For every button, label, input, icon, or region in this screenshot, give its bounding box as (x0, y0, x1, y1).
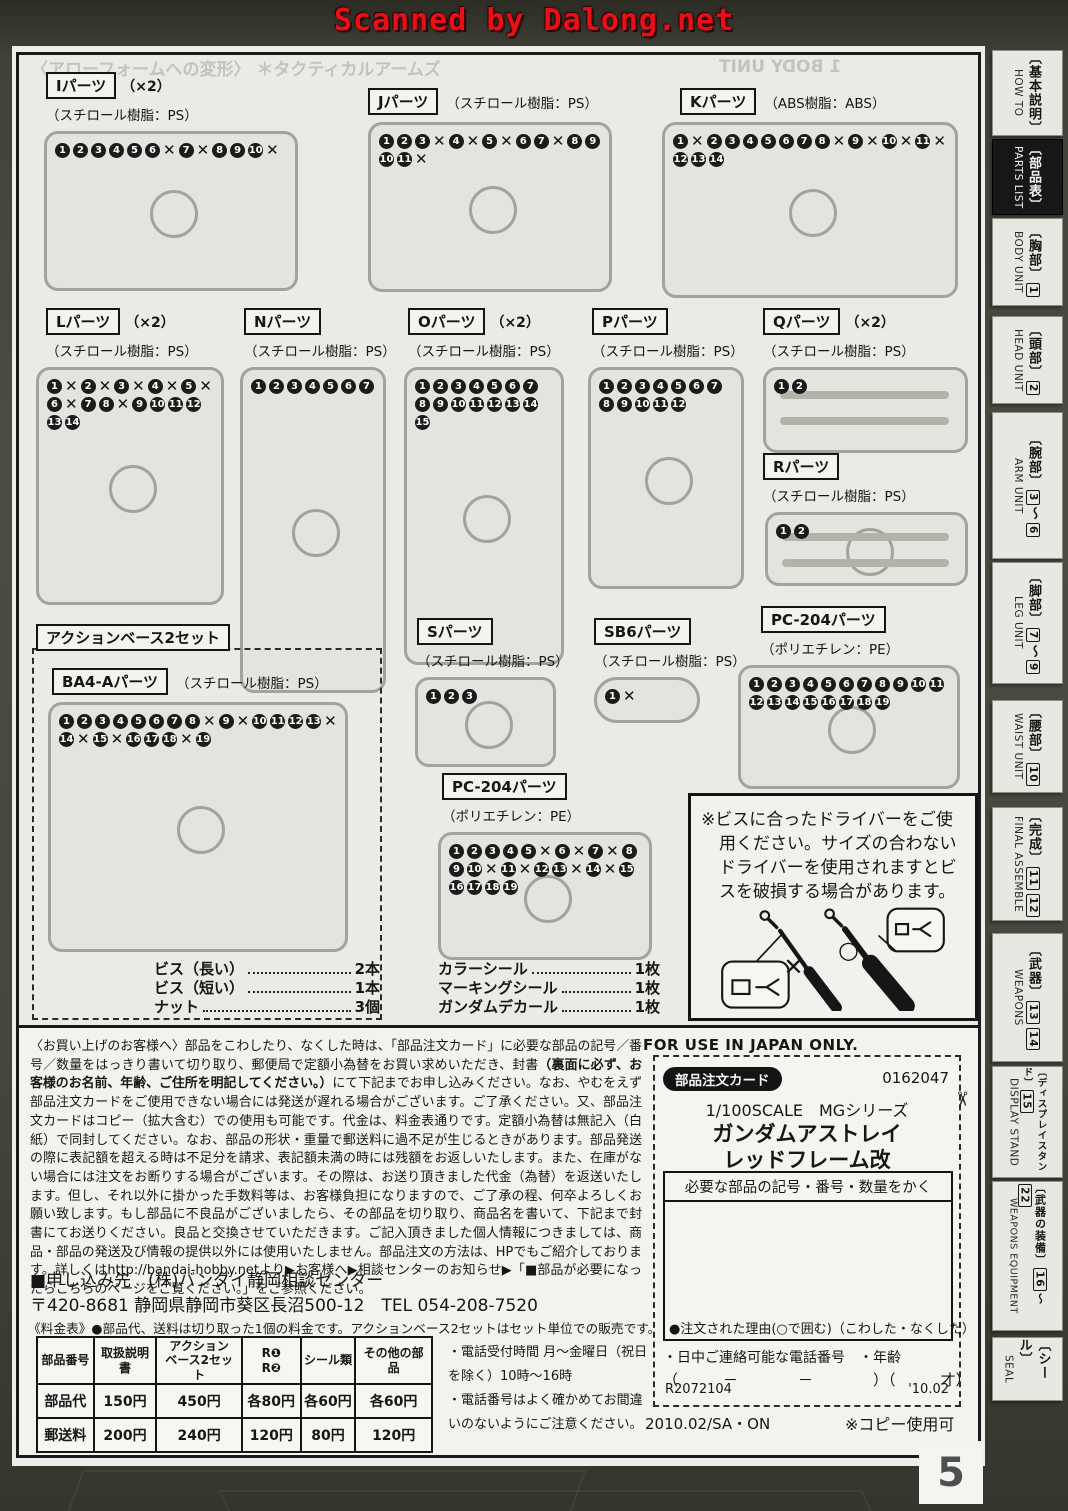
price-table-cell: 120円 (355, 1418, 432, 1452)
parts-write-box: 必要な部品の記号・番号・数量をかく ●注文された理由(○で囲む)（こわした・なく… (663, 1171, 953, 1341)
part-number-badge: 18 (485, 880, 500, 895)
part-number-badge: 9 (132, 397, 147, 412)
part-number-badge: 16 (821, 695, 836, 710)
part-number-badge: 1 (449, 844, 464, 859)
part-number-badge: 15 (415, 415, 430, 430)
runner-diagram-l: 1✕2✕3✕4✕5✕6✕78✕91011121314 (36, 367, 224, 605)
part-number-badge: 11 (653, 397, 668, 412)
part-number-badge: 1 (605, 689, 620, 704)
part-number-badge: 13 (552, 862, 567, 877)
part-number-badge: 1 (415, 379, 430, 394)
part-material: （スチロール樹脂：PS） (244, 340, 396, 360)
price-table-header-cell: 部品番号 (37, 1337, 94, 1384)
ok-mark: ○ (838, 936, 859, 964)
order-info-area: 〈お買い上げのお客様へ〉部品をこわしたり、なくした時は、「部品注文カード」に必要… (16, 1025, 981, 1458)
screw-nut-list: ビス（長い）2本ビス（短い）1本ナット3個 (154, 960, 380, 1016)
crossed-out-mark: ✕ (570, 862, 583, 877)
part-number-badge: 19 (875, 695, 890, 710)
part-number-badge: 3 (451, 379, 466, 394)
part-number-badge: 9 (230, 143, 245, 158)
sidebar-tab-leg-unit[interactable]: 〔脚部〕7～9LEG UNIT (992, 562, 1063, 684)
part-material: （スチロール樹脂：PS） (594, 650, 746, 670)
part-number-badge: 6 (149, 714, 164, 729)
part-number-badge: 8 (599, 397, 614, 412)
part-number-badge: 4 (113, 714, 128, 729)
part-label: BA4-Aパーツ (52, 668, 168, 695)
part-multiplier: （×2） (125, 312, 174, 332)
tab-step-number: 15 (1020, 1090, 1034, 1113)
crossed-out-mark: ✕ (519, 862, 532, 877)
part-number-badge: 3 (95, 714, 110, 729)
runner-diagram-k: 1✕2345678✕9✕10✕11✕121314 (662, 122, 958, 298)
part-number-badge: 1 (55, 143, 70, 158)
order-card-label: 部品注文カード (663, 1067, 782, 1091)
runner-diagram-ba4a: 12345678✕9✕10111213✕14✕15✕161718✕19 (48, 702, 348, 952)
quantity-list-row: カラーシール1枚 (438, 960, 660, 978)
part-label: Qパーツ (763, 308, 840, 335)
tab-step-number: 2 (1026, 381, 1040, 395)
part-number-badge: 5 (131, 714, 146, 729)
part-label: Nパーツ (244, 308, 321, 335)
sidebar-tab-parts-list[interactable]: 〔部品表〕PARTS LIST (992, 139, 1063, 215)
dot-leader (532, 972, 631, 974)
postal-address-line: 〒420-8681 静岡県静岡市葵区長沼500-12 TEL 054-208-7… (30, 1291, 538, 1316)
crossed-out-mark: ✕ (203, 714, 216, 729)
sidebar-tab-how-to[interactable]: 〔基本説明〕HOW TO (992, 50, 1063, 136)
crossed-out-mark: ✕ (65, 379, 78, 394)
part-number-badge: 11 (168, 397, 183, 412)
price-table-header-cell: R❶ R❷ (242, 1337, 301, 1384)
part-number-badge: 2 (73, 143, 88, 158)
price-table-cell: 240円 (156, 1418, 242, 1452)
sidebar-tab-display-stand[interactable]: 〔ディスプレイスタンド〕15DISPLAY STAND (992, 1066, 1063, 1178)
part-number-badge: 18 (857, 695, 872, 710)
part-multiplier: （×2） (845, 312, 894, 332)
part-number-badge: 17 (839, 695, 854, 710)
crossed-out-mark: ✕ (500, 134, 513, 149)
part-number-badge: 5 (482, 134, 497, 149)
part-number-badge: 1 (426, 689, 441, 704)
part-number-badge: 5 (181, 379, 196, 394)
order-instructions-paragraph: 〈お買い上げのお客様へ〉部品をこわしたり、なくした時は、「部品注文カード」に必要… (30, 1038, 642, 1300)
quantity-list-row: ビス（長い）2本 (154, 960, 380, 978)
text-segment: にて下記までお申し込みください。なお、やむをえず部品注文カードをご使用できない場… (30, 1076, 642, 1297)
write-box-header: 必要な部品の記号・番号・数量をかく (665, 1173, 951, 1202)
part-number-badge: 2 (467, 844, 482, 859)
crossed-out-mark: ✕ (166, 379, 179, 394)
item-name: カラーシール (438, 960, 528, 978)
price-table-cell: 450円 (156, 1384, 242, 1418)
sidebar-tab-weapons[interactable]: 〔武器〕1314WEAPONS (992, 933, 1063, 1062)
action-base-box: BA4-Aパーツ（スチロール樹脂：PS） 12345678✕9✕10111213… (32, 648, 382, 1020)
wrong-mark: ✕ (784, 953, 804, 981)
part-label: Pパーツ (592, 308, 668, 335)
item-name: ビス（短い） (154, 979, 244, 997)
quantity-list-row: ガンダムデカール1枚 (438, 998, 660, 1016)
runner-diagram-r: 12 (765, 512, 968, 586)
part-number-badge: 6 (516, 134, 531, 149)
part-number-badge: 2 (444, 689, 459, 704)
part-number-badge: 7 (534, 134, 549, 149)
tab-step-number: 11 (1026, 867, 1040, 890)
price-table-header-cell: シール類 (301, 1337, 356, 1384)
part-number-badge: 13 (306, 714, 321, 729)
part-number-badge: 4 (803, 677, 818, 692)
price-table: 部品番号取扱説明書アクション ベース2セットR❶ R❷シール類その他の部品部品代… (36, 1336, 433, 1453)
card-serial-code: R2072104 (665, 1382, 732, 1397)
sidebar-tab-weapons-equipment[interactable]: 〔武器の装備〕16～22WEAPONS EQUIPMENT (992, 1181, 1063, 1331)
part-section-o: Oパーツ（×2） （スチロール樹脂：PS） 123456789101112131… (408, 308, 564, 665)
part-material: （スチロール樹脂：PS） (176, 672, 328, 692)
part-number-badge: 3 (635, 379, 650, 394)
part-section-sb6: SB6パーツ （スチロール樹脂：PS） 1✕ (594, 618, 746, 723)
part-number-badge: 10 (882, 134, 897, 149)
part-number-badge: 6 (47, 397, 62, 412)
note-line: ・電話番号はよく確かめてお間違いのないようにご注意ください。 (448, 1389, 648, 1437)
part-material: （ABS樹脂：ABS） (764, 92, 885, 112)
part-number-badge: 3 (91, 143, 106, 158)
price-table-cell: 120円 (242, 1418, 301, 1452)
part-number-badge: 7 (167, 714, 182, 729)
part-number-badge: 9 (893, 677, 908, 692)
part-number-badge: 17 (467, 880, 482, 895)
price-table-header-cell: アクション ベース2セット (156, 1337, 242, 1384)
tab-step-number: 10 (1026, 763, 1040, 786)
part-number-badge: 4 (653, 379, 668, 394)
dot-leader (203, 1010, 351, 1012)
part-number-badge: 4 (109, 143, 124, 158)
part-number-badge: 2 (81, 379, 96, 394)
crossed-out-mark: ✕ (433, 134, 446, 149)
part-number-badge: 14 (59, 732, 74, 747)
dot-leader (248, 991, 351, 993)
part-number-badge: 3 (415, 134, 430, 149)
part-number-badge: 1 (379, 134, 394, 149)
part-number-badge: 12 (673, 152, 688, 167)
part-number-badge: 9 (848, 134, 863, 149)
part-number-badge: 2 (617, 379, 632, 394)
runner-diagram-p: 123456789101112 (588, 367, 744, 589)
part-number-badge: 8 (185, 714, 200, 729)
price-table-header-cell: その他の部品 (355, 1337, 432, 1384)
item-name: ガンダムデカール (438, 998, 558, 1016)
part-number-badge: 12 (186, 397, 201, 412)
crossed-out-mark: ✕ (132, 379, 145, 394)
part-material: （スチロール樹脂：PS） (46, 340, 224, 360)
crossed-out-mark: ✕ (117, 397, 130, 412)
part-number-badge: 8 (622, 844, 637, 859)
part-label: Kパーツ (680, 88, 756, 115)
part-number-badge: 11 (929, 677, 944, 692)
part-number-badge: 10 (635, 397, 650, 412)
part-number-badge: 15 (803, 695, 818, 710)
apply-address-line: ■申し込み先 (株)バンダイ静岡相談センター (30, 1266, 383, 1291)
part-number-badge: 7 (359, 379, 374, 394)
sidebar-tab-seal[interactable]: 〔シール〕SEAL (992, 1337, 1063, 1401)
part-number-badge: 10 (248, 143, 263, 158)
order-card-code: 0162047 (882, 1069, 949, 1087)
part-number-badge: 15 (619, 862, 634, 877)
part-material: （スチロール樹脂：PS） (763, 340, 968, 360)
runner-diagram-i: 123456✕7✕8910✕ (44, 131, 298, 291)
parts-list-area: 〈アローフォームへの変形〉 ＊タクティカルアームズ 1 BODY UNIT Iパ… (16, 52, 981, 1028)
crossed-out-mark: ✕ (623, 689, 636, 704)
part-number-badge: 10 (451, 397, 466, 412)
runner-diagram-sb6: 1✕ (594, 677, 700, 723)
part-number-badge: 7 (707, 379, 722, 394)
part-number-badge: 1 (251, 379, 266, 394)
tab-step-number: 13 (1026, 1001, 1040, 1024)
part-number-badge: 1 (673, 134, 688, 149)
part-label: Iパーツ (46, 72, 116, 99)
dot-leader (562, 1010, 631, 1012)
part-number-badge: 3 (462, 689, 477, 704)
quantity-list-row: ビス（短い）1本 (154, 979, 380, 997)
part-number-badge: 14 (709, 152, 724, 167)
part-number-badge: 6 (505, 379, 520, 394)
part-number-badge: 18 (162, 732, 177, 747)
part-number-badge: 3 (725, 134, 740, 149)
part-material: （スチロール樹脂：PS） (408, 340, 564, 360)
part-number-badge: 5 (761, 134, 776, 149)
crossed-out-mark: ✕ (691, 134, 704, 149)
part-section-pc204-b: PC-204パーツ （ポリエチレン：PE） 12345✕6✕7✕8910✕11✕… (442, 773, 652, 960)
sidebar-tab-final-assemble[interactable]: 〔完成〕1112FINAL ASSEMBLE (992, 807, 1063, 921)
part-number-badge: 14 (523, 397, 538, 412)
part-material: （スチロール樹脂：PS） (763, 485, 968, 505)
part-number-badge: 14 (65, 415, 80, 430)
item-qty: 1本 (355, 979, 380, 997)
part-number-badge: 7 (588, 844, 603, 859)
scanned-manual-page: Scanned by Dalong.net 〈アローフォームへの変形〉 ＊タクテ… (0, 0, 1068, 1511)
print-date-code: 2010.02/SA・ON (645, 1413, 770, 1434)
part-number-badge: 9 (433, 397, 448, 412)
phone-notes: ・電話受付時間 月～金曜日（祝日を除く）10時～16時・電話番号はよく確かめてお… (448, 1341, 648, 1437)
part-number-badge: 2 (707, 134, 722, 149)
runner-diagram-s: 123 (415, 677, 556, 767)
part-section-pc204-a: PC-204パーツ （ポリエチレン：PE） 123456789101112131… (761, 606, 960, 789)
part-material: （ポリエチレン：PE） (761, 638, 960, 658)
runner-diagram-pc204-a: 12345678910111213141516171819 (738, 665, 960, 789)
crossed-out-mark: ✕ (573, 844, 586, 859)
crossed-out-mark: ✕ (833, 134, 846, 149)
crossed-out-mark: ✕ (467, 134, 480, 149)
price-table-cell: 部品代 (37, 1384, 94, 1418)
part-number-badge: 16 (126, 732, 141, 747)
part-material: （スチロール樹脂：PS） (46, 104, 298, 124)
part-number-badge: 6 (555, 844, 570, 859)
runner-diagram-n: 1234567 (240, 367, 386, 693)
part-number-badge: 11 (397, 152, 412, 167)
crossed-out-mark: ✕ (324, 714, 337, 729)
bleed-through-text-mirrored: 1 BODY UNIT (719, 57, 841, 77)
tab-step-number: 22 (1018, 1184, 1032, 1207)
order-reason-line: ●注文された理由(○で囲む)（こわした・なくした） (665, 1316, 951, 1339)
crossed-out-mark: ✕ (606, 844, 619, 859)
tab-step-number: 9 (1026, 660, 1040, 674)
part-number-badge: 12 (749, 695, 764, 710)
item-qty: 1枚 (635, 979, 660, 997)
price-table-cell: 150円 (94, 1384, 157, 1418)
runner-diagram-q: 12 (763, 367, 968, 453)
box-art-lines (218, 1490, 906, 1511)
price-table-note: 《料金表》●部品代、送料は切り取った1個の料金です。アクションベース2セットはセ… (28, 1318, 660, 1337)
crossed-out-mark: ✕ (866, 134, 879, 149)
part-number-badge: 10 (467, 862, 482, 877)
text-segment: ・日中ご連絡可能な電話番号 (663, 1350, 859, 1366)
crossed-out-mark: ✕ (180, 732, 193, 747)
part-number-badge: 6 (689, 379, 704, 394)
part-number-badge: 11 (915, 134, 930, 149)
page-number: 5 (919, 1441, 983, 1504)
part-number-badge: 13 (505, 397, 520, 412)
tab-step-number: 14 (1026, 1028, 1040, 1051)
part-number-badge: 4 (305, 379, 320, 394)
part-number-badge: 3 (114, 379, 129, 394)
note-line: ・電話受付時間 月～金曜日（祝日を除く）10時～16時 (448, 1341, 648, 1389)
part-number-badge: 5 (127, 143, 142, 158)
part-number-badge: 5 (671, 379, 686, 394)
part-multiplier: （×2） (490, 312, 539, 332)
part-number-badge: 1 (59, 714, 74, 729)
part-number-badge: 7 (81, 397, 96, 412)
part-number-badge: 12 (534, 862, 549, 877)
part-number-badge: 12 (288, 714, 303, 729)
part-section-p: Pパーツ （スチロール樹脂：PS） 123456789101112 (592, 308, 744, 589)
crossed-out-mark: ✕ (99, 379, 112, 394)
part-label: PC-204パーツ (761, 606, 886, 633)
crossed-out-mark: ✕ (900, 134, 913, 149)
part-number-badge: 1 (774, 379, 789, 394)
part-number-badge: 6 (341, 379, 356, 394)
part-number-badge: 3 (287, 379, 302, 394)
price-table-cell: 各80円 (242, 1384, 301, 1418)
crossed-out-mark: ✕ (485, 862, 498, 877)
sidebar-tab-waist-unit[interactable]: 〔腰部〕10WAIST UNIT (992, 700, 1063, 793)
crossed-out-mark: ✕ (552, 134, 565, 149)
part-section-s: Sパーツ （スチロール樹脂：PS） 123 (417, 618, 569, 767)
part-material: （スチロール樹脂：PS） (446, 92, 598, 112)
part-number-badge: 13 (767, 695, 782, 710)
part-section-r: Rパーツ （スチロール樹脂：PS） 12 (763, 453, 968, 586)
price-table-cell: 各60円 (301, 1384, 356, 1418)
scan-watermark: Scanned by Dalong.net (0, 3, 1068, 38)
part-number-badge: 4 (469, 379, 484, 394)
part-number-badge: 8 (567, 134, 582, 149)
part-label: SB6パーツ (594, 618, 691, 645)
part-section-j: Jパーツ（スチロール樹脂：PS） 123✕4✕5✕67✕891011✕ (368, 88, 612, 292)
part-number-badge: 14 (586, 862, 601, 877)
part-number-badge: 6 (779, 134, 794, 149)
crossed-out-mark: ✕ (415, 152, 428, 167)
part-number-badge: 5 (821, 677, 836, 692)
part-number-badge: 5 (323, 379, 338, 394)
crossed-out-mark: ✕ (65, 397, 78, 412)
price-table-row: 部品代150円450円各80円各60円各60円 (37, 1384, 432, 1418)
part-number-badge: 15 (93, 732, 108, 747)
part-number-badge: 8 (212, 143, 227, 158)
part-number-badge: 2 (794, 524, 809, 539)
crossed-out-mark: ✕ (199, 379, 212, 394)
part-number-badge: 5 (521, 844, 536, 859)
tab-step-number: 7 (1026, 628, 1040, 642)
part-label: Lパーツ (46, 308, 120, 335)
sidebar-tab-body-unit[interactable]: 〔胸部〕1BODY UNIT (992, 218, 1063, 306)
text-segment: ・年齢 (859, 1350, 901, 1366)
part-multiplier: （×2） (121, 76, 170, 96)
part-number-badge: 8 (875, 677, 890, 692)
item-name: ビス（長い） (154, 960, 244, 978)
part-number-badge: 8 (415, 397, 430, 412)
item-name: マーキングシール (438, 979, 558, 997)
copy-allowed-note: ※コピー使用可 (845, 1411, 954, 1435)
part-label: Rパーツ (763, 453, 839, 480)
part-number-badge: 16 (449, 880, 464, 895)
part-material: （スチロール樹脂：PS） (592, 340, 744, 360)
part-number-badge: 9 (449, 862, 464, 877)
part-number-badge: 12 (671, 397, 686, 412)
part-section-i: Iパーツ（×2） （スチロール樹脂：PS） 123456✕7✕8910✕ (46, 72, 298, 291)
price-table-cell: 郵送料 (37, 1418, 94, 1452)
part-number-badge: 4 (503, 844, 518, 859)
part-number-badge: 9 (585, 134, 600, 149)
product-name-line2: レッドフレーム改 (655, 1144, 959, 1174)
crossed-out-mark: ✕ (933, 134, 946, 149)
part-number-badge: 7 (523, 379, 538, 394)
part-number-badge: 17 (144, 732, 159, 747)
screwdriver-warning-box: ※ビスに合ったドライバーをご使用ください。サイズの合わないドライバーを使用されま… (688, 793, 978, 1021)
part-number-badge: 2 (397, 134, 412, 149)
part-section-n: Nパーツ （スチロール樹脂：PS） 1234567 (244, 308, 396, 693)
price-table-cell: 80円 (301, 1418, 356, 1452)
part-number-badge: 8 (99, 397, 114, 412)
price-table-row: 郵送料200円240円120円80円120円 (37, 1418, 432, 1452)
text-segment: ） (956, 1371, 971, 1389)
crossed-out-mark: ✕ (111, 732, 124, 747)
part-number-badge: 11 (270, 714, 285, 729)
crossed-out-mark: ✕ (77, 732, 90, 747)
crossed-out-mark: ✕ (197, 143, 210, 158)
crossed-out-mark: ✕ (237, 714, 250, 729)
part-number-badge: 12 (487, 397, 502, 412)
for-japan-only: FOR USE IN JAPAN ONLY. (643, 1036, 858, 1054)
part-number-badge: 2 (269, 379, 284, 394)
item-qty: 1枚 (635, 960, 660, 978)
part-number-badge: 13 (691, 152, 706, 167)
part-number-badge: 11 (469, 397, 484, 412)
item-qty: 3個 (355, 998, 380, 1016)
part-number-badge: 2 (433, 379, 448, 394)
sidebar-tab-arm-unit[interactable]: 〔腕部〕3～6ARM UNIT (992, 412, 1063, 559)
part-number-badge: 3 (785, 677, 800, 692)
part-number-badge: 13 (47, 415, 62, 430)
sidebar-tab-head-unit[interactable]: 〔頭部〕2HEAD UNIT (992, 316, 1063, 404)
runner-diagram-j: 123✕4✕5✕67✕891011✕ (368, 122, 612, 292)
item-qty: 2本 (355, 960, 380, 978)
part-number-badge: 2 (792, 379, 807, 394)
part-number-badge: 2 (77, 714, 92, 729)
part-number-badge: 10 (379, 152, 394, 167)
part-number-badge: 9 (617, 397, 632, 412)
part-number-badge: 7 (179, 143, 194, 158)
dot-leader (248, 972, 351, 974)
parts-order-card: 部品注文カード 0162047 1/100SCALE MGシリーズ ガンダムアス… (653, 1055, 961, 1407)
part-number-badge: 14 (785, 695, 800, 710)
part-label: PC-204パーツ (442, 773, 567, 800)
part-number-badge: 1 (776, 524, 791, 539)
part-label: Sパーツ (417, 618, 493, 645)
tab-step-number: 3 (1026, 490, 1040, 504)
